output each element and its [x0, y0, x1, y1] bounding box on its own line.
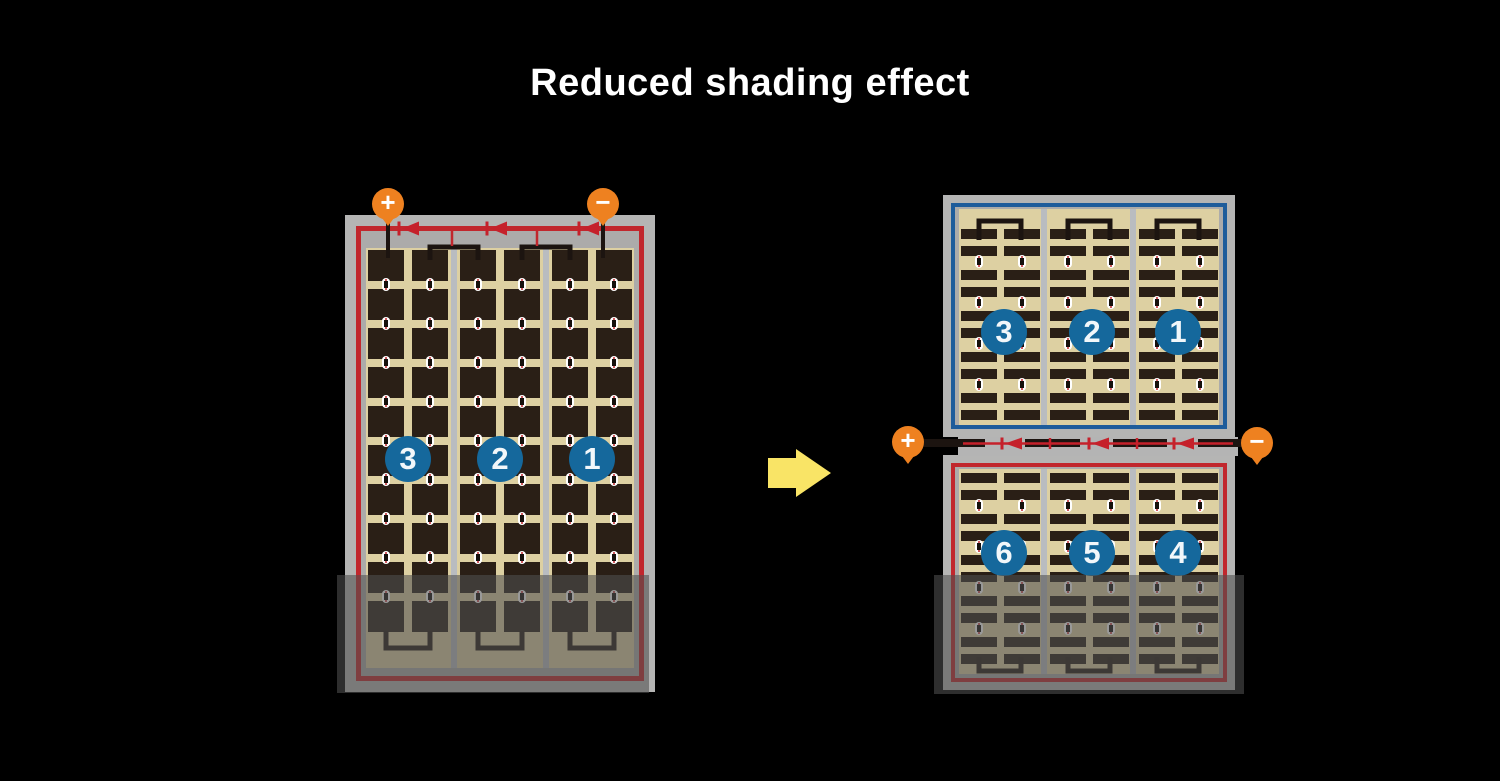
string-number: 3	[995, 314, 1012, 350]
positive-terminal-icon: +	[372, 188, 404, 220]
string-badge: 4	[1155, 530, 1201, 576]
string-number: 1	[583, 441, 600, 477]
shading-overlay-right	[934, 575, 1244, 694]
top-bridge-wire	[1068, 221, 1110, 240]
string-badge: 1	[1155, 309, 1201, 355]
string-number: 1	[1169, 314, 1186, 350]
string-badge: 2	[477, 436, 523, 482]
string-number: 2	[1083, 314, 1100, 350]
string-badge: 1	[569, 436, 615, 482]
positive-terminal-icon: +	[892, 426, 924, 458]
wiring-overlay	[0, 0, 1500, 781]
string-badge: 3	[385, 436, 431, 482]
terminal-label: +	[900, 425, 915, 456]
string-number: 4	[1169, 535, 1186, 571]
junction-box-wiring	[918, 437, 1254, 456]
terminal-label: +	[380, 187, 395, 218]
terminal-label: −	[595, 187, 610, 218]
junction-strip	[958, 437, 1238, 456]
string-badge: 3	[981, 309, 1027, 355]
transform-arrow-icon	[768, 449, 831, 497]
right-top-module-bridges	[979, 221, 1199, 240]
diode-icon	[490, 222, 507, 236]
negative-terminal-icon: −	[587, 188, 619, 220]
top-bridge-wire	[979, 221, 1021, 240]
string-number: 3	[399, 441, 416, 477]
string-number: 2	[491, 441, 508, 477]
string-badge: 2	[1069, 309, 1115, 355]
string-number: 5	[1083, 535, 1100, 571]
string-badge: 6	[981, 530, 1027, 576]
string-number: 6	[995, 535, 1012, 571]
negative-terminal-icon: −	[1241, 427, 1273, 459]
left-module-wiring	[388, 206, 603, 260]
top-bridge-wire	[1157, 221, 1199, 240]
terminal-label: −	[1249, 426, 1264, 457]
top-bridge-wire	[430, 247, 478, 260]
top-bridge-wire	[522, 247, 570, 260]
diode-icon	[402, 222, 419, 236]
shading-overlay-left	[337, 575, 649, 693]
string-badge: 5	[1069, 530, 1115, 576]
diagram-canvas: Reduced shading effect	[0, 0, 1500, 781]
